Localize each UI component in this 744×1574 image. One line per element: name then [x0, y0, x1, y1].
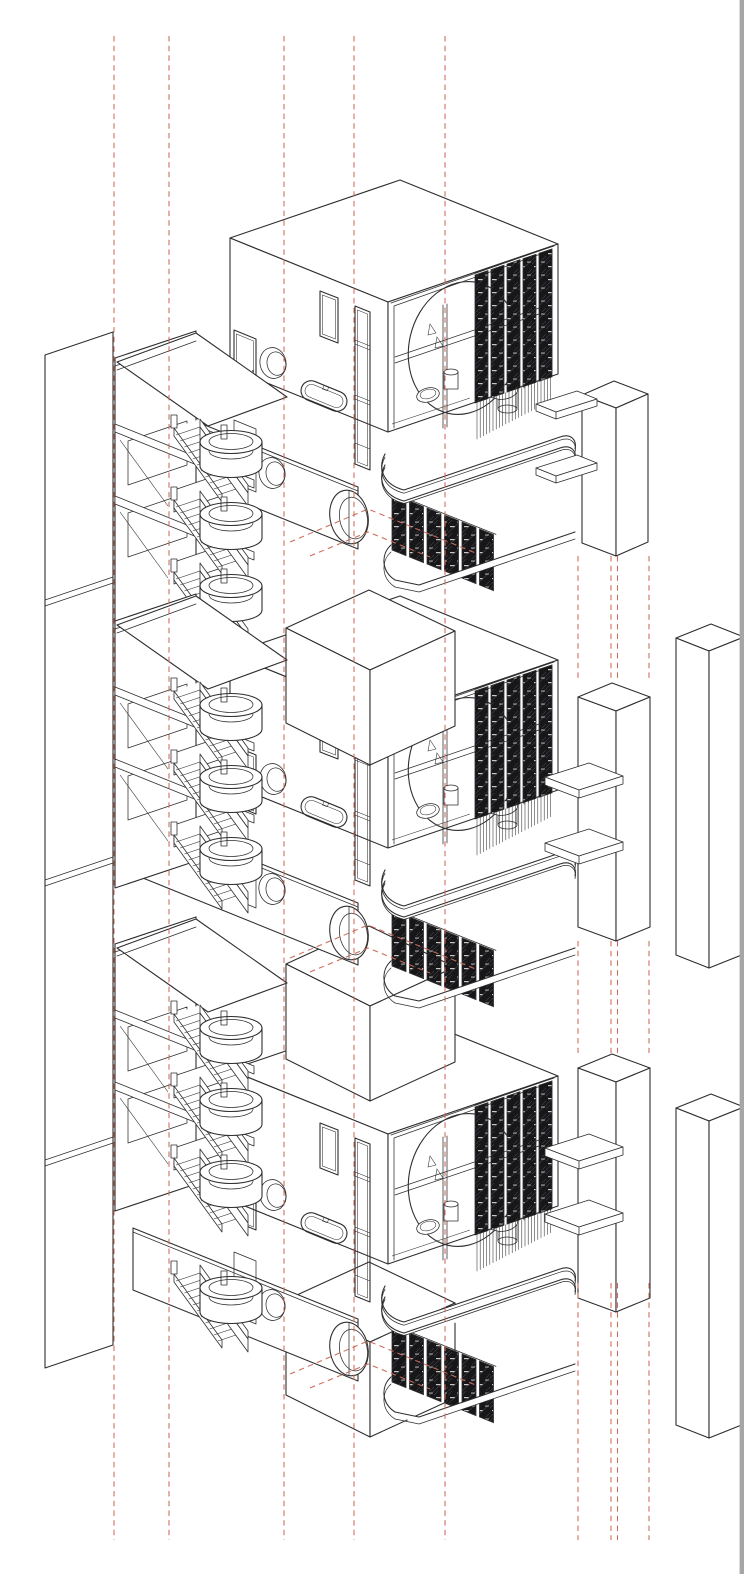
edge-pier-2	[676, 1094, 744, 1438]
axonometric-drawing	[0, 0, 744, 1574]
stair-tower-back-wall	[45, 332, 113, 1368]
column-tall-1	[545, 683, 650, 941]
page-edge-line	[740, 0, 744, 1574]
tall-columns	[545, 683, 650, 1312]
column-short	[536, 381, 648, 556]
edge-piers	[676, 624, 744, 1438]
edge-pier-1	[676, 624, 744, 968]
drawing-page	[0, 0, 744, 1574]
